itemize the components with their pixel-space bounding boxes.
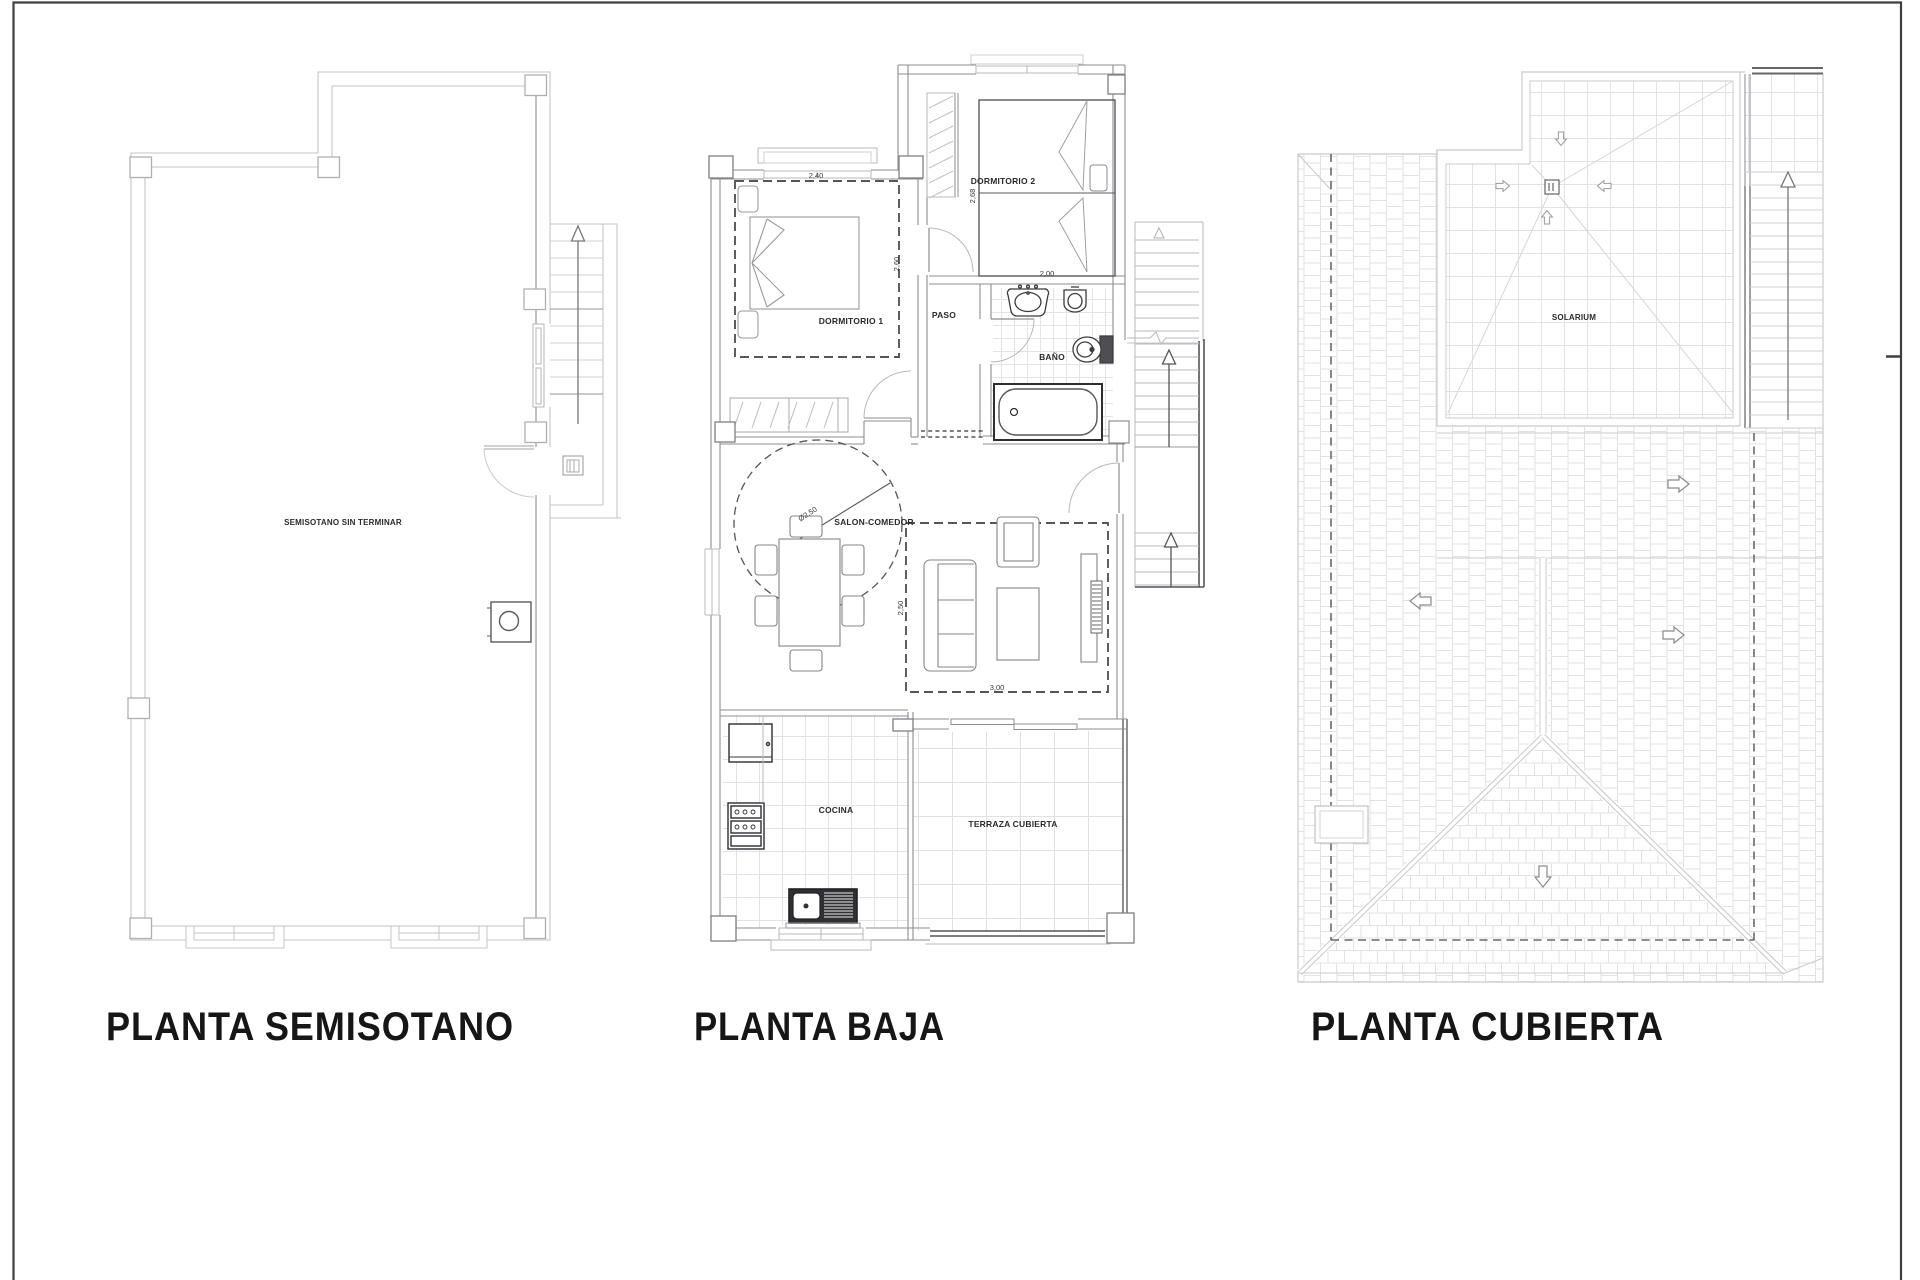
svg-text:SALON-COMEDOR: SALON-COMEDOR xyxy=(834,517,914,527)
svg-text:2,40: 2,40 xyxy=(809,171,824,180)
svg-text:PASO: PASO xyxy=(932,310,956,320)
svg-text:PLANTA BAJA: PLANTA BAJA xyxy=(694,1005,945,1049)
svg-text:PLANTA SEMISOTANO: PLANTA SEMISOTANO xyxy=(106,1005,514,1049)
svg-text:2,00: 2,00 xyxy=(1040,269,1055,278)
svg-text:SEMISOTANO SIN TERMINAR: SEMISOTANO SIN TERMINAR xyxy=(284,518,402,527)
svg-text:2,60: 2,60 xyxy=(892,257,901,272)
svg-text:3,00: 3,00 xyxy=(990,683,1005,692)
svg-text:COCINA: COCINA xyxy=(819,805,854,815)
svg-text:TERRAZA CUBIERTA: TERRAZA CUBIERTA xyxy=(968,819,1057,829)
svg-text:BAÑO: BAÑO xyxy=(1039,352,1065,362)
svg-text:DORMITORIO 2: DORMITORIO 2 xyxy=(971,176,1036,186)
svg-text:SOLARIUM: SOLARIUM xyxy=(1552,313,1596,322)
svg-text:2,50: 2,50 xyxy=(896,601,905,616)
svg-text:PLANTA CUBIERTA: PLANTA CUBIERTA xyxy=(1311,1005,1664,1049)
svg-text:DORMITORIO 1: DORMITORIO 1 xyxy=(819,316,884,326)
svg-text:2,68: 2,68 xyxy=(968,189,977,204)
